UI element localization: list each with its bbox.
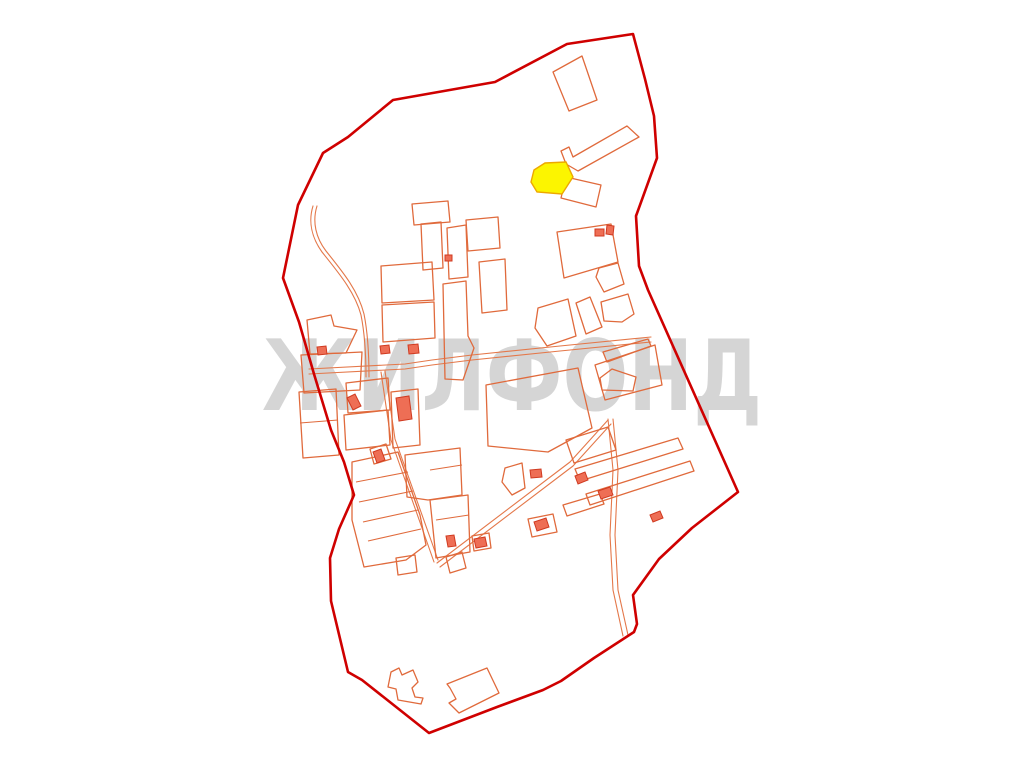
cadastral-map-canvas: ЖИЛФОНД xyxy=(0,0,1024,768)
parcel-outline xyxy=(381,262,434,303)
building-footprint xyxy=(530,469,542,478)
parcel-divider xyxy=(368,529,421,541)
parcel-divider xyxy=(436,515,469,520)
parcel-outline xyxy=(447,225,468,279)
parcel-outline xyxy=(561,126,639,171)
parcel-outline xyxy=(563,494,604,516)
map-page: ЖИЛФОНД xyxy=(0,0,1024,768)
building-footprint xyxy=(445,255,452,261)
building-footprint xyxy=(380,345,390,354)
road-edge-line xyxy=(437,420,608,563)
building-footprint xyxy=(373,449,385,463)
parcel-outline xyxy=(575,438,683,481)
building-footprint xyxy=(317,346,327,355)
building-footprint xyxy=(534,518,549,531)
building-footprint xyxy=(606,225,614,235)
building-footprint xyxy=(650,511,663,522)
parcel-outline xyxy=(396,555,417,575)
parcel-outline xyxy=(466,217,500,251)
parcel-outline xyxy=(502,463,525,495)
parcel-divider-lines xyxy=(300,420,469,541)
parcel-outline xyxy=(388,668,423,704)
building-footprint xyxy=(474,537,487,548)
parcel-divider xyxy=(356,472,408,482)
parcel-divider xyxy=(359,491,413,502)
building-footprint xyxy=(408,344,419,354)
parcel-outline xyxy=(553,56,597,111)
building-footprint xyxy=(595,229,604,236)
parcel-divider xyxy=(363,510,418,522)
building-footprint xyxy=(396,396,412,421)
parcel-outline xyxy=(412,201,450,225)
parcel-outline xyxy=(352,452,426,567)
parcel-outline xyxy=(479,259,507,313)
parcel-outline xyxy=(601,294,634,322)
highlighted-parcel xyxy=(531,162,573,194)
building-footprint xyxy=(446,535,456,547)
parcel-outline xyxy=(447,668,499,713)
parcel-divider xyxy=(430,465,462,470)
parcel-outline xyxy=(596,263,624,292)
